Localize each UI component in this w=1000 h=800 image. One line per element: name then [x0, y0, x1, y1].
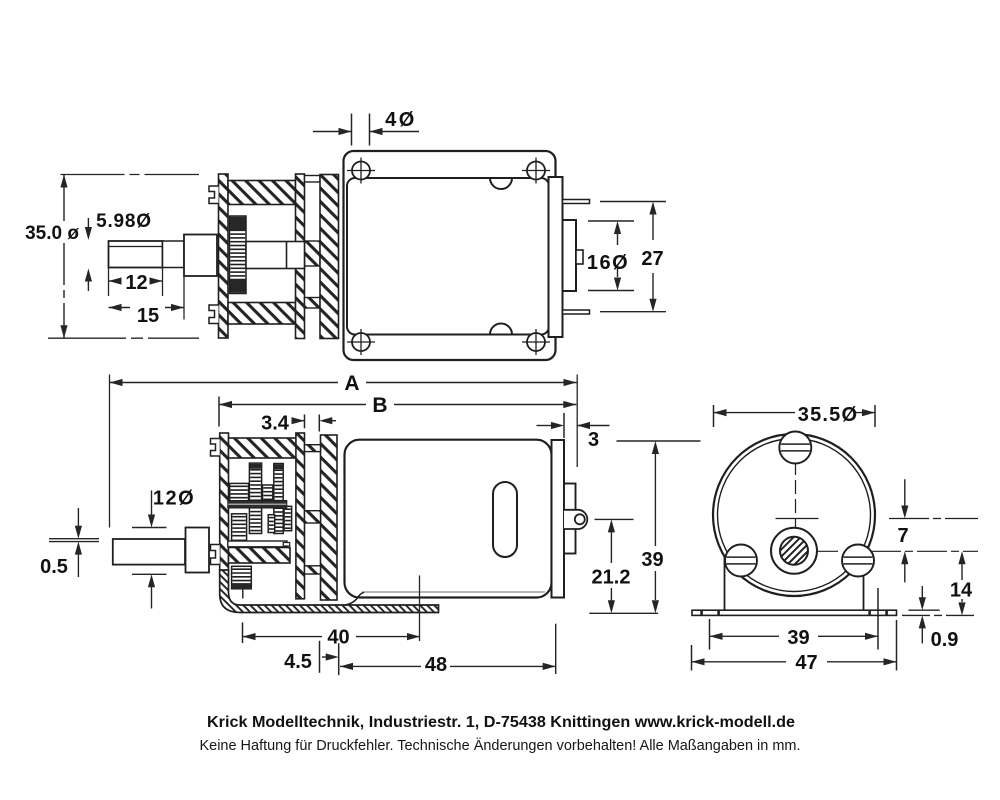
svg-text:0.5: 0.5 — [40, 556, 68, 578]
svg-text:35.5Ø: 35.5Ø — [798, 404, 858, 426]
svg-text:14: 14 — [950, 580, 973, 602]
svg-text:15: 15 — [137, 305, 159, 327]
svg-text:35.0 ø: 35.0 ø — [25, 223, 79, 244]
svg-text:12: 12 — [125, 272, 147, 294]
svg-text:3.4: 3.4 — [261, 413, 290, 435]
svg-text:12Ø: 12Ø — [153, 488, 195, 510]
svg-text:Keine Haftung für Druckfehler.: Keine Haftung für Druckfehler. Technisch… — [200, 737, 801, 754]
svg-text:48: 48 — [425, 654, 447, 676]
svg-text:4.5: 4.5 — [284, 651, 312, 673]
svg-text:39: 39 — [787, 627, 809, 649]
svg-text:0.9: 0.9 — [931, 629, 959, 651]
svg-text:Krick Modelltechnik, Industrie: Krick Modelltechnik, Industriestr. 1, D-… — [207, 714, 795, 731]
svg-text:3: 3 — [588, 429, 599, 451]
svg-text:B: B — [372, 394, 387, 417]
svg-text:27: 27 — [641, 248, 663, 270]
svg-text:A: A — [344, 372, 359, 395]
svg-text:5.98Ø: 5.98Ø — [96, 211, 152, 232]
svg-text:39: 39 — [641, 549, 663, 571]
svg-text:7: 7 — [897, 525, 908, 547]
svg-text:16Ø: 16Ø — [587, 252, 629, 274]
svg-text:21.2: 21.2 — [592, 567, 631, 589]
svg-text:4Ø: 4Ø — [385, 109, 417, 131]
svg-text:47: 47 — [795, 652, 817, 674]
